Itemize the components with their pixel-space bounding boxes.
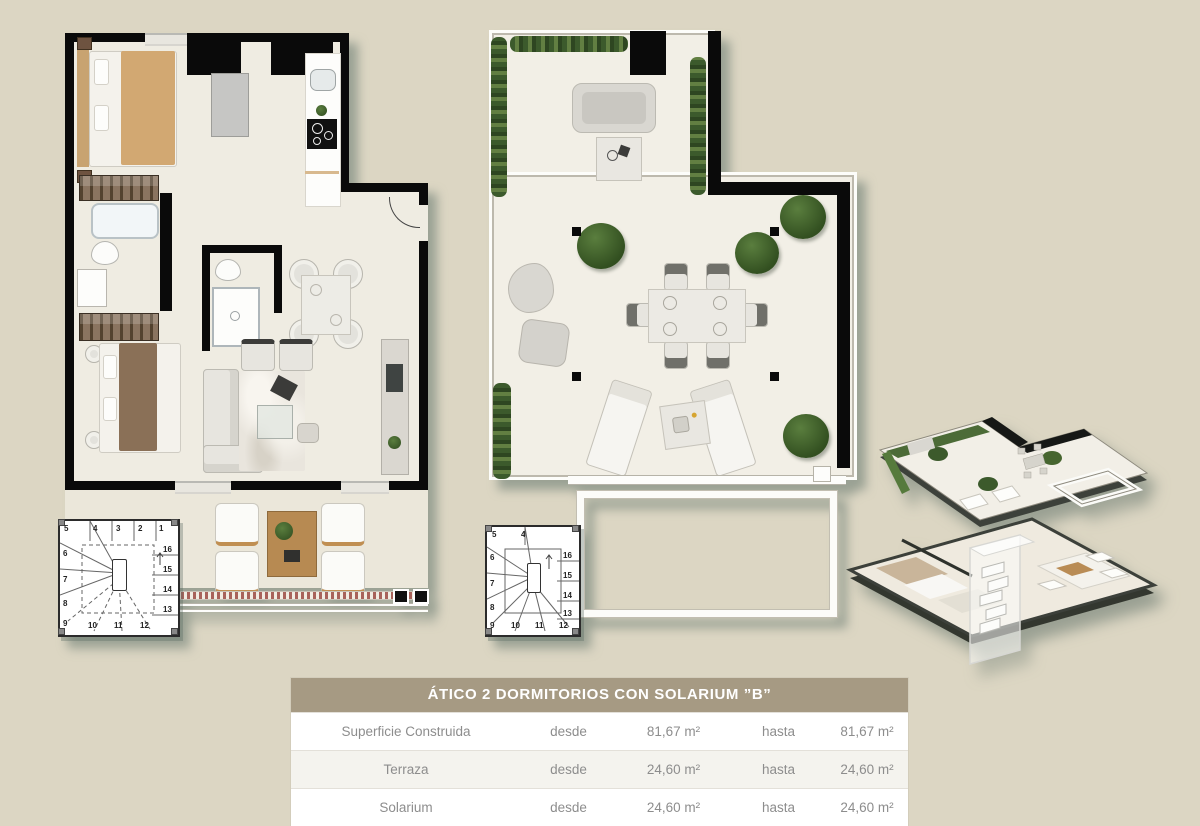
post — [393, 589, 409, 604]
planter — [690, 57, 706, 195]
outdoor-dining-table — [648, 289, 746, 343]
surface-spec-table: ÁTICO 2 DORMITORIOS CON SOLARIUM ”B” Sup… — [291, 678, 908, 826]
stair-step-number: 7 — [63, 575, 67, 584]
from-label: desde — [521, 762, 616, 777]
terrace-door — [175, 481, 231, 494]
plate — [663, 322, 677, 336]
stair-step-number: 11 — [114, 621, 122, 630]
burner — [313, 137, 321, 145]
dining-chair — [664, 263, 688, 291]
planter — [510, 36, 628, 52]
post — [413, 589, 429, 604]
dining-chair — [706, 341, 730, 369]
tree — [780, 195, 826, 239]
bathroom-vanity — [77, 269, 107, 307]
stair-step-number: 10 — [88, 621, 97, 630]
armchair — [279, 339, 313, 371]
stair-step-number: 4 — [521, 530, 525, 539]
to-value: 81,67 m² — [826, 724, 908, 739]
tree — [783, 414, 829, 458]
wall — [202, 253, 210, 351]
3d-exploded-view — [842, 388, 1174, 688]
to-label: hasta — [731, 724, 826, 739]
decor — [672, 416, 690, 434]
stair-step-number: 12 — [559, 621, 568, 630]
from-value: 24,60 m² — [616, 762, 731, 777]
counter-edge — [305, 171, 339, 174]
pillow — [103, 397, 117, 421]
tree — [577, 223, 625, 269]
stair-step-number: 9 — [490, 621, 494, 630]
plant — [388, 436, 401, 449]
row-label: Terraza — [291, 762, 521, 777]
kitchen-sink — [310, 69, 336, 91]
dining-table — [301, 275, 351, 335]
corner-post — [171, 519, 178, 526]
stair-step-number: 10 — [511, 621, 520, 630]
terrace-armchair — [321, 551, 365, 594]
window — [145, 33, 187, 46]
burner — [324, 131, 333, 140]
staircase-diagram: 5 4 6 7 8 9 10 11 12 16 15 14 13 — [485, 525, 581, 637]
plant — [316, 105, 327, 116]
to-value: 24,60 m² — [826, 800, 908, 815]
lower-level-outline — [577, 491, 837, 617]
stair-newel — [527, 563, 541, 593]
solarium-floor-plan: 5 4 6 7 8 9 10 11 12 16 15 14 13 — [480, 25, 870, 640]
plant — [275, 522, 293, 540]
stair-step-number: 5 — [492, 530, 496, 539]
sofa-seat — [582, 92, 646, 124]
to-label: hasta — [731, 762, 826, 777]
corner-post — [171, 628, 178, 635]
bean-bag — [508, 263, 554, 313]
stair-step-number: 2 — [138, 524, 142, 533]
tree — [735, 232, 779, 274]
table-row: Solarium desde 24,60 m² hasta 24,60 m² — [291, 788, 908, 826]
floorplan-sheet: { "page": { "background_color": "#dcd6c3… — [0, 0, 1200, 800]
tv-unit — [381, 339, 409, 475]
toilet — [215, 259, 241, 281]
column — [572, 227, 581, 236]
wall — [708, 182, 850, 195]
wardrobe — [79, 313, 159, 341]
parapet — [568, 475, 846, 485]
planter — [491, 37, 507, 197]
plate — [310, 284, 322, 296]
planter — [493, 383, 511, 479]
terrace-table — [267, 511, 317, 577]
terrace-armchair — [321, 503, 365, 546]
stair-step-number: 1 — [159, 524, 163, 533]
to-label: hasta — [731, 800, 826, 815]
stair-newel — [112, 559, 127, 591]
pillow — [103, 355, 117, 379]
stair-step-number: 13 — [563, 609, 572, 618]
terrace-door — [341, 481, 389, 494]
wall — [340, 183, 428, 192]
stair-step-number: 6 — [63, 549, 67, 558]
stair-step-number: 14 — [563, 591, 572, 600]
dining-chair — [706, 263, 730, 291]
plate — [663, 296, 677, 310]
stair-step-number: 16 — [563, 551, 572, 560]
pergola-strip — [151, 591, 428, 600]
stair-step-number: 13 — [163, 605, 172, 614]
closet — [211, 73, 249, 137]
stair-step-number: 14 — [163, 585, 172, 594]
wall — [202, 245, 282, 253]
corner-post — [572, 628, 579, 635]
column — [572, 372, 581, 381]
corner-post — [58, 628, 65, 635]
stair-step-number: 8 — [63, 599, 67, 608]
wall — [65, 33, 74, 490]
tray — [284, 550, 300, 562]
shower-drain — [230, 311, 240, 321]
spec-table-title: ÁTICO 2 DORMITORIOS CON SOLARIUM ”B” — [291, 678, 908, 712]
corner-post — [572, 525, 579, 532]
plate — [330, 314, 342, 326]
post — [813, 466, 831, 482]
stair-step-number: 15 — [163, 565, 172, 574]
plate — [713, 322, 727, 336]
stair-step-number: 15 — [563, 571, 572, 580]
bed-2-blanket — [119, 343, 157, 451]
stair-step-number: 3 — [116, 524, 120, 533]
wall — [630, 31, 666, 75]
to-value: 24,60 m² — [826, 762, 908, 777]
bed-headboard — [77, 49, 89, 167]
table-row: Superficie Construida desde 81,67 m² has… — [291, 712, 908, 750]
stair-step-number: 4 — [93, 524, 97, 533]
row-label: Solarium — [291, 800, 521, 815]
wardrobe — [79, 175, 159, 201]
entrance-opening — [419, 205, 428, 241]
stair-step-number: 12 — [140, 621, 149, 630]
plate — [713, 296, 727, 310]
burner — [312, 123, 323, 134]
stair-step-number: 6 — [490, 553, 494, 562]
wall — [708, 31, 721, 195]
bathtub — [91, 203, 159, 239]
cooktop — [307, 119, 337, 149]
pillow — [94, 105, 109, 131]
column — [770, 227, 779, 236]
row-label: Superficie Construida — [291, 724, 521, 739]
toilet — [91, 241, 119, 265]
wall — [187, 33, 241, 75]
decor — [691, 412, 697, 418]
bean-bag — [517, 318, 571, 368]
armchair — [241, 339, 275, 371]
stair-step-number: 11 — [535, 621, 543, 630]
decor — [607, 150, 618, 161]
wall — [160, 193, 172, 311]
decor — [618, 145, 631, 158]
stair-step-number: 9 — [63, 619, 67, 628]
from-label: desde — [521, 724, 616, 739]
side-table — [659, 400, 711, 450]
tv — [386, 364, 403, 392]
dining-chair — [664, 341, 688, 369]
stair-step-number: 16 — [163, 545, 172, 554]
shower — [212, 287, 260, 347]
terrace-armchair — [215, 503, 259, 546]
wall — [340, 33, 349, 191]
stair-step-number: 8 — [490, 603, 494, 612]
from-label: desde — [521, 800, 616, 815]
from-value: 24,60 m² — [616, 800, 731, 815]
bed-blanket — [121, 51, 175, 165]
outdoor-sofa — [572, 83, 656, 133]
apartment-floor-plan: 4 3 2 1 5 6 7 8 9 10 11 12 16 15 14 13 — [55, 25, 435, 640]
outdoor-coffee-table — [596, 137, 642, 181]
wall — [274, 253, 282, 313]
stair-step-number: 5 — [64, 524, 68, 533]
column — [770, 372, 779, 381]
from-value: 81,67 m² — [616, 724, 731, 739]
pillow — [94, 59, 109, 85]
wall — [241, 33, 271, 42]
pouf — [297, 423, 319, 443]
coffee-table — [257, 405, 293, 439]
stair-step-number: 7 — [490, 579, 494, 588]
terrace-armchair — [215, 551, 259, 594]
corner-post — [485, 525, 492, 532]
table-row: Terraza desde 24,60 m² hasta 24,60 m² — [291, 750, 908, 788]
staircase-diagram: 4 3 2 1 5 6 7 8 9 10 11 12 16 15 14 13 — [58, 519, 180, 637]
nightstand — [77, 37, 92, 50]
